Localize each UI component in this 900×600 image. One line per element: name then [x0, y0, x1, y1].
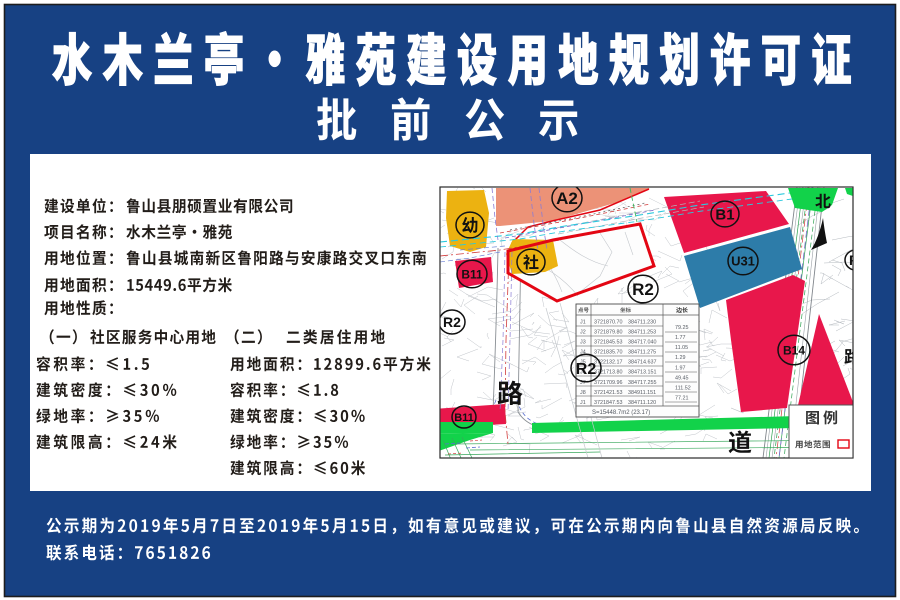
svg-text:49.45: 49.45 [675, 375, 689, 381]
svg-text:3721709.96: 3721709.96 [594, 380, 622, 386]
svg-text:R2: R2 [632, 280, 654, 299]
svg-text:B14: B14 [783, 343, 805, 357]
svg-text:1.77: 1.77 [675, 335, 686, 341]
svg-text:384713.151: 384713.151 [628, 370, 656, 376]
svg-text:S=15448.7m2 (23.17): S=15448.7m2 (23.17) [592, 410, 650, 416]
svg-text:1.29: 1.29 [675, 355, 686, 361]
svg-text:3721845.53: 3721845.53 [594, 340, 622, 346]
svg-text:384717.255: 384717.255 [628, 380, 656, 386]
svg-text:384711.230: 384711.230 [628, 319, 656, 325]
svg-text:384711.275: 384711.275 [628, 350, 656, 356]
svg-text:3721879.80: 3721879.80 [594, 329, 622, 335]
svg-text:J1: J1 [580, 400, 586, 406]
svg-text:U31: U31 [731, 254, 755, 269]
svg-text:J1: J1 [580, 319, 586, 325]
svg-text:3721421.53: 3721421.53 [594, 390, 622, 396]
svg-text:384911.151: 384911.151 [628, 390, 656, 396]
svg-text:B11: B11 [454, 412, 474, 424]
svg-text:J2: J2 [580, 329, 586, 335]
svg-text:79.25: 79.25 [675, 325, 689, 331]
svg-text:R2: R2 [576, 361, 597, 378]
svg-text:3721847.53: 3721847.53 [594, 400, 622, 406]
svg-text:384711.120: 384711.120 [628, 400, 656, 406]
svg-text:B11: B11 [461, 267, 483, 281]
svg-text:A2: A2 [556, 189, 578, 208]
svg-text:384717.040: 384717.040 [628, 340, 656, 346]
svg-text:B1: B1 [715, 206, 734, 223]
svg-text:111.52: 111.52 [675, 386, 691, 392]
svg-text:J8: J8 [580, 390, 586, 396]
svg-text:11.05: 11.05 [675, 345, 688, 351]
svg-text:384714.637: 384714.637 [628, 360, 656, 366]
svg-text:J3: J3 [580, 340, 586, 346]
svg-text:3721870.70: 3721870.70 [594, 319, 622, 325]
svg-text:77.21: 77.21 [675, 396, 689, 402]
svg-text:3721835.70: 3721835.70 [594, 350, 622, 356]
svg-text:384711.253: 384711.253 [628, 329, 656, 335]
svg-text:R2: R2 [443, 314, 461, 330]
svg-text:1.97: 1.97 [675, 365, 686, 371]
